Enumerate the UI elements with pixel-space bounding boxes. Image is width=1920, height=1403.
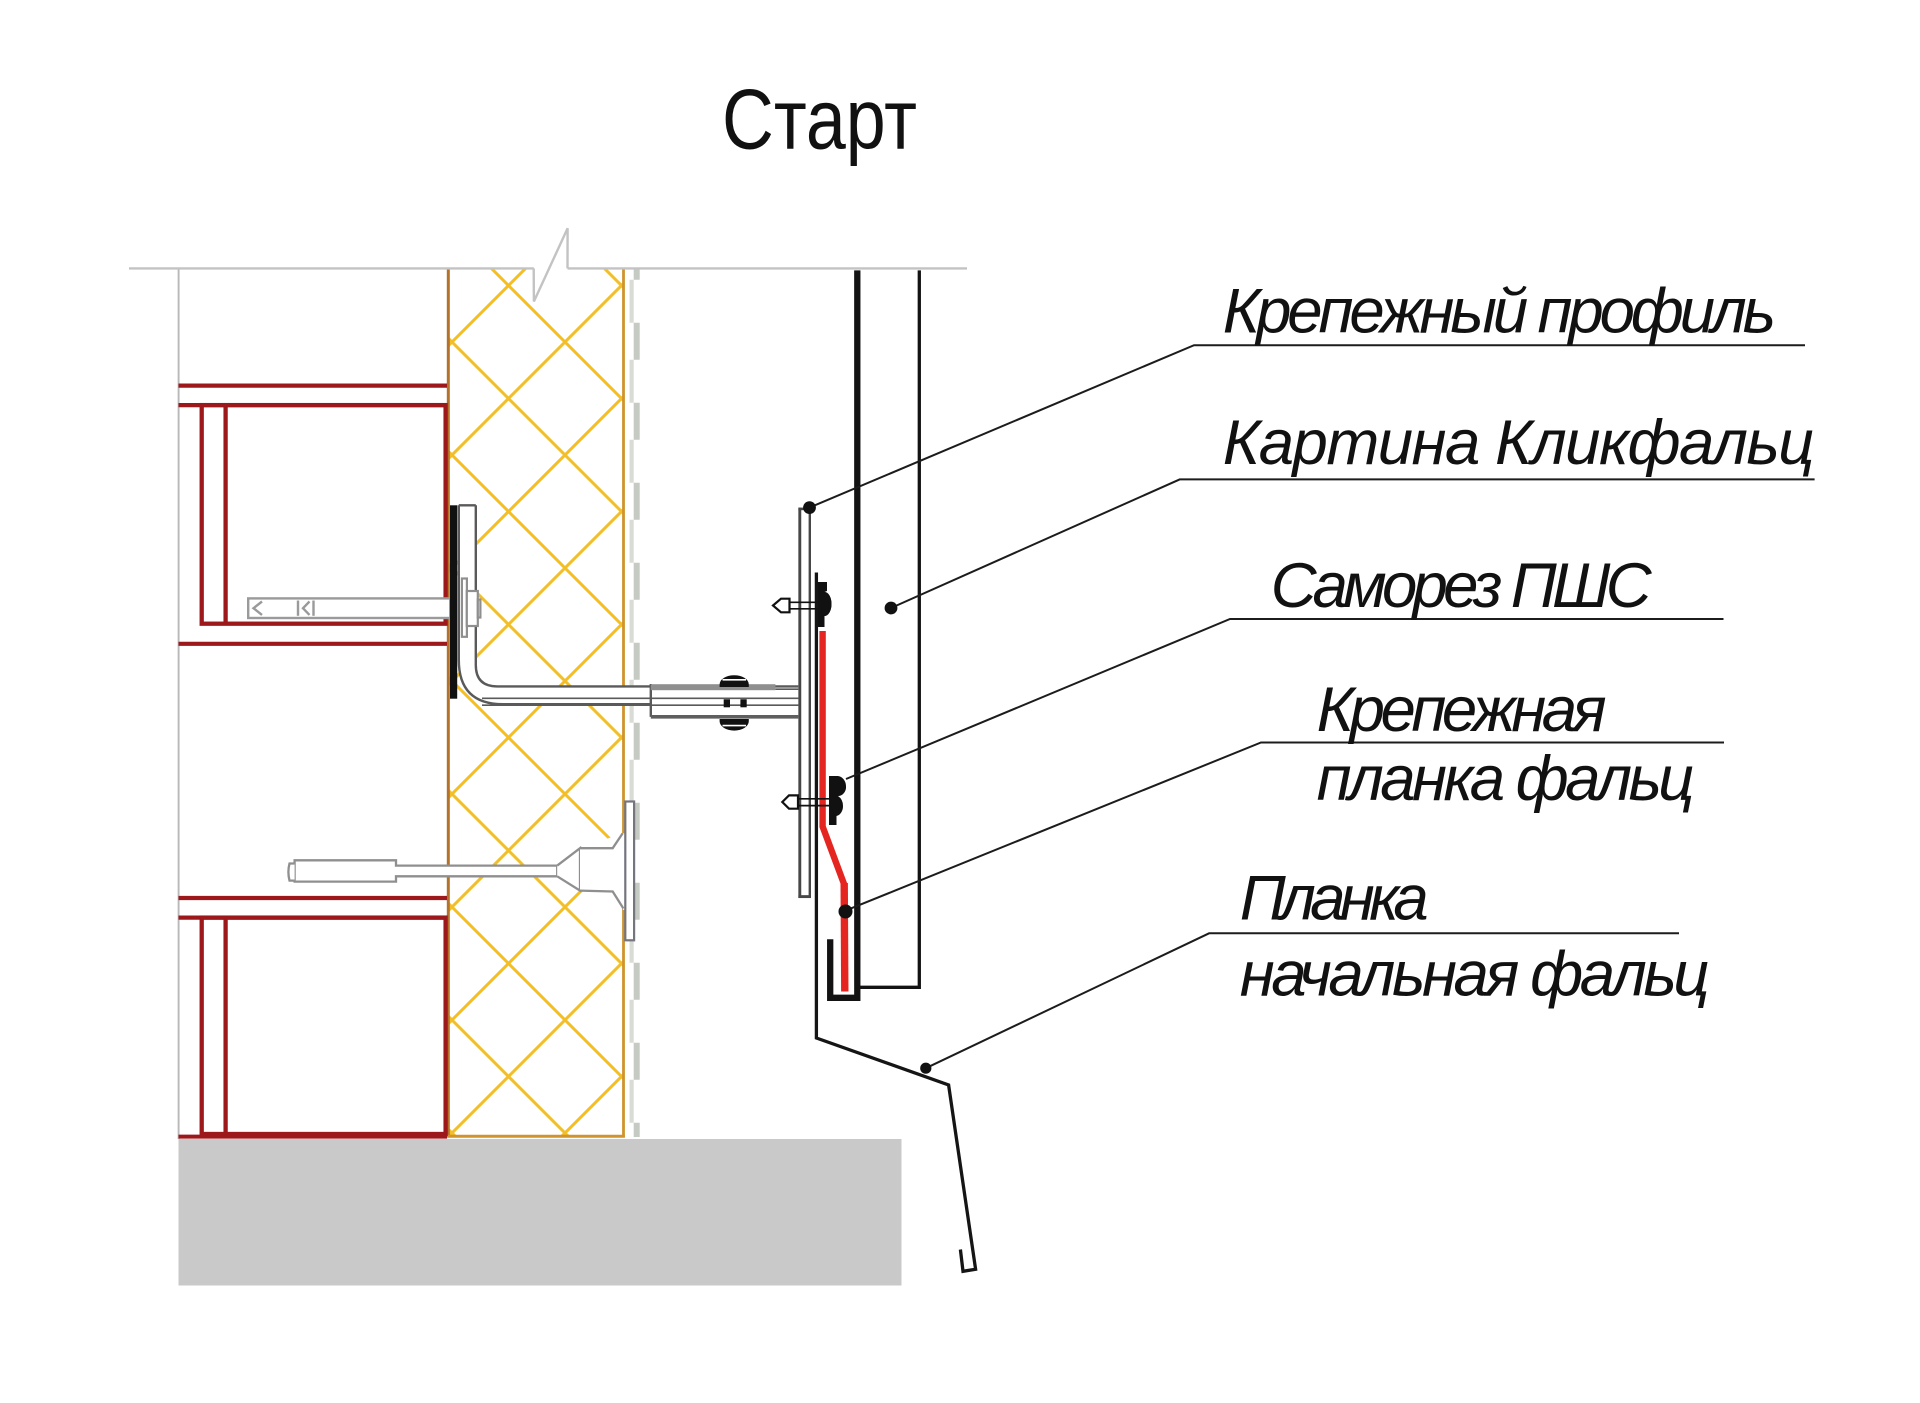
- svg-text:Крепежный профиль: Крепежный профиль: [1223, 276, 1776, 346]
- svg-text:Картина Кликфальц: Картина Кликфальц: [1223, 408, 1815, 478]
- svg-text:Крепежная: Крепежная: [1317, 675, 1607, 745]
- svg-text:Старт: Старт: [722, 73, 917, 168]
- svg-text:планка фальц: планка фальц: [1317, 744, 1695, 814]
- svg-text:начальная фальц: начальная фальц: [1240, 940, 1710, 1010]
- svg-text:Саморез ПШС: Саморез ПШС: [1271, 551, 1653, 621]
- svg-text:Планка: Планка: [1240, 864, 1429, 934]
